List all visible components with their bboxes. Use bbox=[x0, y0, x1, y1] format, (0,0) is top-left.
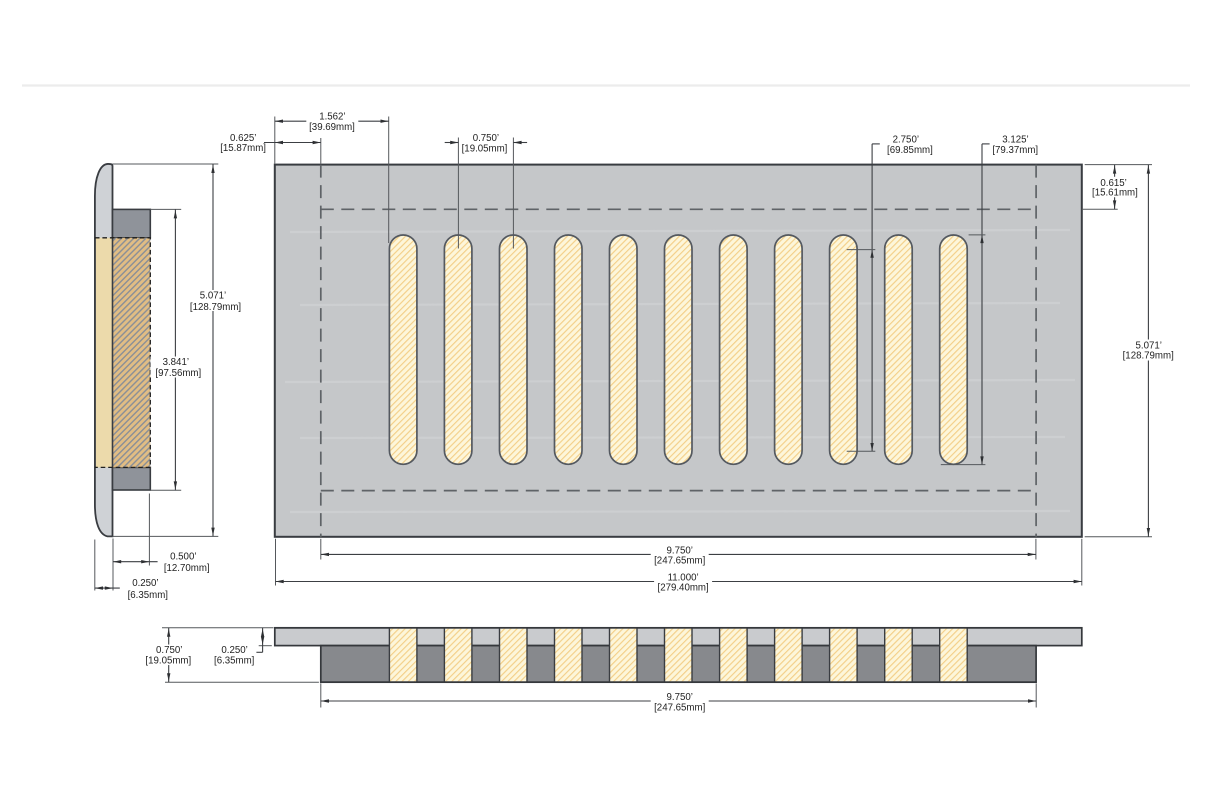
svg-text:[6.35mm]: [6.35mm] bbox=[214, 656, 254, 667]
svg-text:[247.65mm]: [247.65mm] bbox=[654, 556, 705, 567]
svg-text:[39.69mm]: [39.69mm] bbox=[309, 122, 355, 133]
svg-text:[128.79mm]: [128.79mm] bbox=[190, 302, 241, 313]
svg-text:1.562’: 1.562’ bbox=[319, 111, 345, 122]
svg-text:9.750’: 9.750’ bbox=[666, 692, 692, 703]
svg-text:[6.35mm]: [6.35mm] bbox=[128, 590, 168, 601]
svg-text:0.750’: 0.750’ bbox=[156, 645, 182, 656]
svg-text:0.250’: 0.250’ bbox=[132, 578, 158, 589]
svg-text:0.750’: 0.750’ bbox=[473, 133, 499, 144]
svg-text:[15.61mm]: [15.61mm] bbox=[1092, 187, 1138, 198]
svg-text:[79.37mm]: [79.37mm] bbox=[992, 145, 1038, 156]
svg-text:[15.87mm]: [15.87mm] bbox=[220, 143, 266, 154]
svg-text:[69.85mm]: [69.85mm] bbox=[887, 145, 933, 156]
svg-text:[279.40mm]: [279.40mm] bbox=[658, 582, 709, 593]
svg-text:3.841’: 3.841’ bbox=[163, 357, 189, 368]
svg-text:[12.70mm]: [12.70mm] bbox=[164, 563, 210, 574]
svg-text:0.500’: 0.500’ bbox=[170, 552, 196, 563]
svg-text:[128.79mm]: [128.79mm] bbox=[1123, 351, 1174, 362]
svg-text:5.071’: 5.071’ bbox=[200, 290, 226, 301]
svg-text:[19.05mm]: [19.05mm] bbox=[145, 656, 191, 667]
svg-text:[19.05mm]: [19.05mm] bbox=[462, 143, 508, 154]
svg-text:[247.65mm]: [247.65mm] bbox=[654, 703, 705, 714]
svg-text:[97.56mm]: [97.56mm] bbox=[155, 368, 201, 379]
svg-text:0.250’: 0.250’ bbox=[221, 645, 247, 656]
